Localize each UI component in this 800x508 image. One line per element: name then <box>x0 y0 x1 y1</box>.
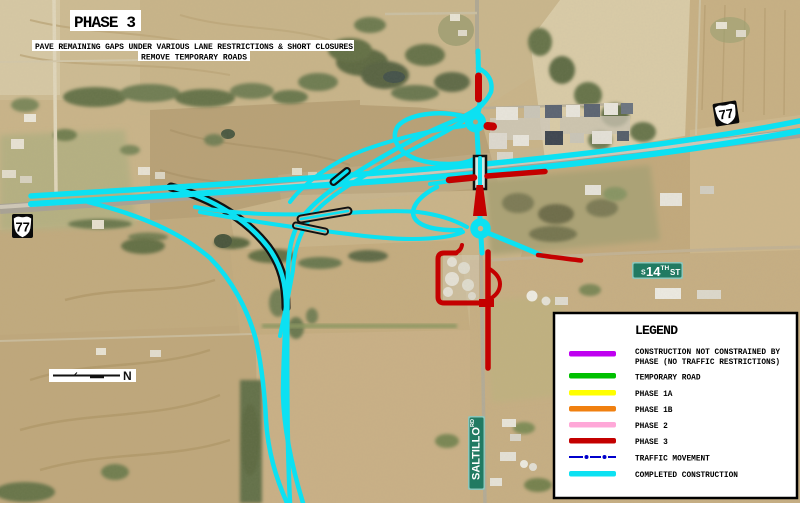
svg-text:PHASE 1B: PHASE 1B <box>635 407 673 415</box>
svg-text:TH: TH <box>661 265 670 272</box>
svg-text:PHASE 1A: PHASE 1A <box>635 391 673 399</box>
svg-text:PHASE 3: PHASE 3 <box>635 439 668 447</box>
svg-text:SALTILLO: SALTILLO <box>471 427 483 480</box>
svg-text:ST: ST <box>670 268 680 277</box>
svg-text:14: 14 <box>646 264 661 279</box>
svg-text:CONSTRUCTION NOT CONSTRAINED B: CONSTRUCTION NOT CONSTRAINED BY <box>635 349 780 357</box>
svg-text:PAVE REMAINING GAPS UNDER VARI: PAVE REMAINING GAPS UNDER VARIOUS LANE R… <box>35 43 353 52</box>
svg-text:LEGEND: LEGEND <box>635 323 678 338</box>
svg-text:77: 77 <box>718 105 735 122</box>
svg-text:REMOVE TEMPORARY ROADS: REMOVE TEMPORARY ROADS <box>141 54 247 63</box>
svg-text:RD: RD <box>470 419 476 427</box>
svg-text:PHASE 3: PHASE 3 <box>74 14 136 32</box>
svg-text:TEMPORARY ROAD: TEMPORARY ROAD <box>635 375 701 383</box>
svg-text:COMPLETED CONSTRUCTION: COMPLETED CONSTRUCTION <box>635 472 738 480</box>
svg-text:PHASE 2: PHASE 2 <box>635 423 668 431</box>
svg-text:N: N <box>123 369 132 383</box>
svg-text:TRAFFIC MOVEMENT: TRAFFIC MOVEMENT <box>635 456 710 464</box>
svg-text:77: 77 <box>15 220 29 235</box>
svg-text:PHASE (NO TRAFFIC RESTRICTIONS: PHASE (NO TRAFFIC RESTRICTIONS) <box>635 359 780 367</box>
